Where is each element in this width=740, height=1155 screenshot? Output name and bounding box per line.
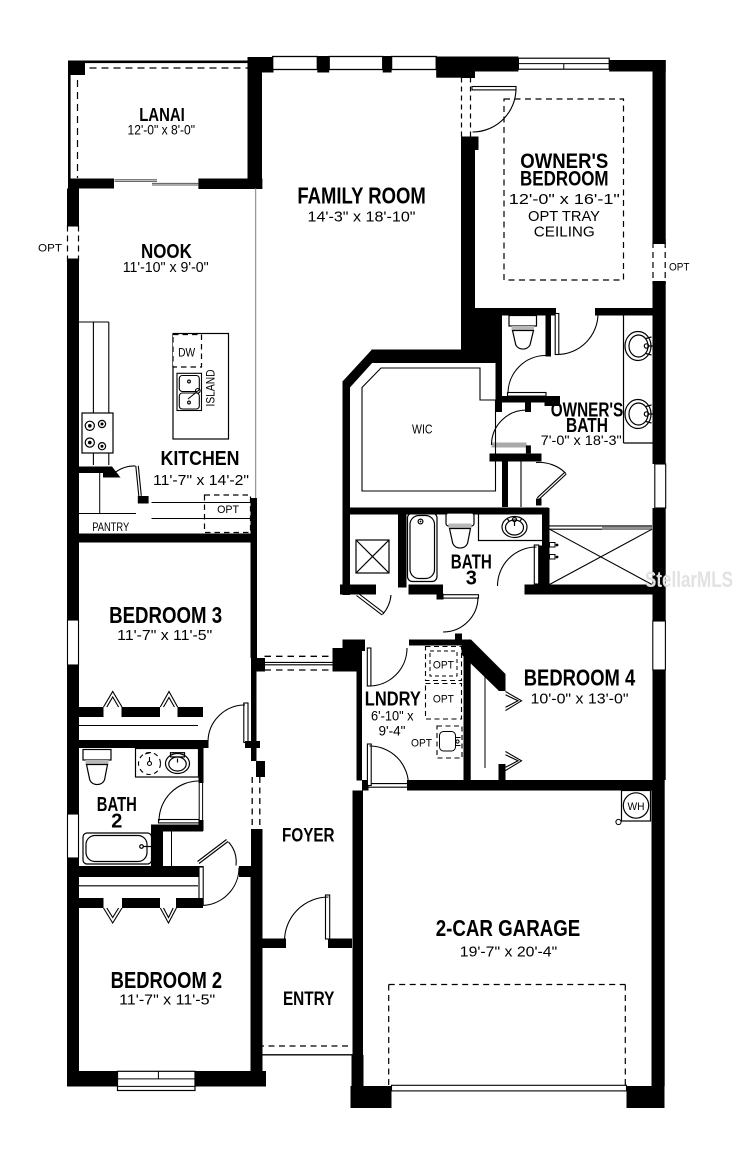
svg-text:2-CAR GARAGE: 2-CAR GARAGE <box>436 915 581 941</box>
svg-text:11'-7" x 14'-2": 11'-7" x 14'-2" <box>153 472 249 489</box>
svg-text:FAMILY ROOM: FAMILY ROOM <box>297 183 426 209</box>
svg-text:7'-0" x 18'-3": 7'-0" x 18'-3" <box>541 432 622 448</box>
svg-text:BEDROOM: BEDROOM <box>520 168 609 191</box>
svg-text:BEDROOM 3: BEDROOM 3 <box>109 602 222 628</box>
svg-text:OPT: OPT <box>38 243 62 255</box>
svg-text:KITCHEN: KITCHEN <box>161 447 240 470</box>
svg-text:OPT: OPT <box>411 738 432 750</box>
svg-text:19'-7" x 20'-4": 19'-7" x 20'-4" <box>460 944 558 961</box>
svg-text:ENTRY: ENTRY <box>283 989 335 1010</box>
svg-text:10'-0" x 13'-0": 10'-0" x 13'-0" <box>531 691 629 708</box>
svg-text:6'-10" x: 6'-10" x <box>371 708 414 724</box>
svg-text:11'-7" x 11'-5": 11'-7" x 11'-5" <box>119 992 215 1009</box>
svg-text:OPT: OPT <box>433 660 454 672</box>
svg-text:9'-4": 9'-4" <box>379 723 406 739</box>
svg-text:OPT: OPT <box>669 262 690 274</box>
svg-text:WIC: WIC <box>412 422 433 437</box>
svg-text:PANTRY: PANTRY <box>92 520 129 534</box>
svg-text:2: 2 <box>111 811 122 833</box>
svg-text:BEDROOM 4: BEDROOM 4 <box>524 665 636 691</box>
svg-text:12'-0" x 16'-1": 12'-0" x 16'-1" <box>509 191 620 208</box>
svg-text:OPT: OPT <box>433 694 454 706</box>
svg-text:OPT: OPT <box>217 504 239 516</box>
svg-text:DW: DW <box>178 348 195 360</box>
svg-text:StellarMLS: StellarMLS <box>645 567 733 592</box>
svg-text:FOYER: FOYER <box>282 826 335 847</box>
svg-text:11'-10" x 9'-0": 11'-10" x 9'-0" <box>123 260 209 276</box>
svg-text:11'-7" x 11'-5": 11'-7" x 11'-5" <box>117 627 212 644</box>
svg-text:12'-0" x 8'-0": 12'-0" x 8'-0" <box>128 122 196 138</box>
svg-text:ISLAND: ISLAND <box>204 369 218 406</box>
svg-text:3: 3 <box>466 568 477 590</box>
svg-text:BEDROOM 2: BEDROOM 2 <box>111 967 223 993</box>
svg-text:OPT TRAY: OPT TRAY <box>528 208 600 225</box>
svg-text:14'-3" x 18'-10": 14'-3" x 18'-10" <box>308 209 416 226</box>
svg-text:CEILING: CEILING <box>534 224 595 241</box>
svg-text:WH: WH <box>628 801 645 813</box>
